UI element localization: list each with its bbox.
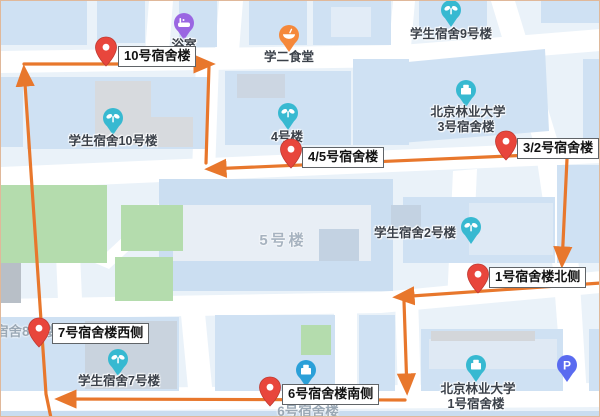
dorm7-poi-label[interactable]: 学生宿舍7号楼 (78, 370, 160, 389)
marker-dorm7-west-callout[interactable]: 7号宿舍楼西侧 (52, 323, 149, 344)
marker-dorm1-north[interactable] (466, 263, 490, 294)
marker-dorm1-north-callout[interactable]: 1号宿舍楼北侧 (489, 267, 586, 288)
marker-dorm32-callout[interactable]: 3/2号宿舍楼 (517, 138, 599, 159)
bfu3-poi-label-line2[interactable]: 3号宿舍楼 (438, 116, 495, 135)
route-segment-mid-down (404, 301, 407, 391)
route-segment-down-to-mid (206, 66, 209, 163)
marker-dorm7-west[interactable] (27, 317, 51, 348)
parking-poi-icon[interactable]: P (556, 354, 578, 384)
dorm9-poi-label[interactable]: 学生宿舍9号楼 (410, 23, 492, 42)
route-segment-right-down (562, 159, 567, 264)
marker-dorm45-callout[interactable]: 4/5号宿舍楼 (302, 147, 384, 168)
dorm2-poi-icon[interactable] (460, 216, 482, 246)
dorm2-poi-label[interactable]: 学生宿舍2号楼 (374, 222, 456, 241)
marker-dorm45[interactable] (279, 138, 303, 169)
marker-dorm6-south[interactable] (258, 376, 282, 407)
route-segment-left-up (24, 69, 51, 417)
marker-dorm32[interactable] (494, 130, 518, 161)
marker-dorm10[interactable] (94, 36, 118, 67)
canteen-poi-label[interactable]: 学二食堂 (264, 46, 314, 65)
marker-dorm6-south-callout[interactable]: 6号宿舍楼南侧 (282, 384, 379, 405)
parking-p-icon: P (563, 359, 571, 373)
dorm10-poi-label[interactable]: 学生宿舍10号楼 (69, 130, 158, 149)
bfu1-poi-label-line2[interactable]: 1号宿舍楼 (448, 393, 505, 412)
map-canvas[interactable]: 5号楼 宿舍8号楼 6号宿舍楼 浴室 学二食堂 (0, 0, 600, 417)
marker-dorm10-callout[interactable]: 10号宿舍楼 (118, 46, 196, 67)
